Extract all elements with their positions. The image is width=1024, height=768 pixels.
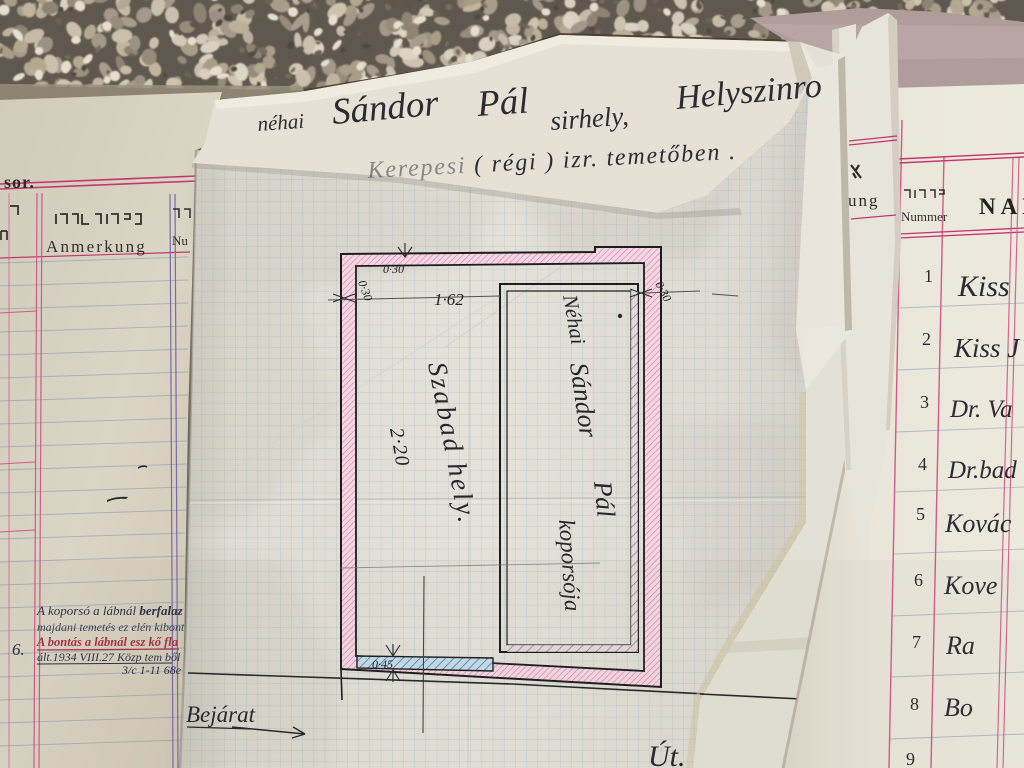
svg-text:NAM: NAM [979, 194, 1024, 219]
svg-text:Pál: Pál [588, 479, 621, 519]
svg-text:1·62: 1·62 [434, 290, 464, 309]
svg-text:Dr. Va: Dr. Va [949, 396, 1013, 423]
svg-text:néhai: néhai [257, 109, 305, 136]
svg-text:Nu: Nu [172, 233, 188, 248]
svg-text:Nummer: Nummer [901, 209, 948, 224]
svg-text:5: 5 [916, 504, 925, 524]
svg-text:Dr.bad: Dr.bad [947, 457, 1017, 484]
svg-text:Kovác: Kovác [944, 509, 1012, 538]
svg-text:ung: ung [848, 191, 880, 210]
svg-text:Kiss J: Kiss J [953, 333, 1021, 363]
svg-text:sor.: sor. [4, 172, 35, 192]
svg-text:Kiss: Kiss [957, 270, 1010, 303]
svg-text:4: 4 [918, 454, 927, 474]
svg-text:3: 3 [920, 392, 929, 412]
svg-text:sirhely,: sirhely, [549, 101, 629, 136]
svg-text:0·30: 0·30 [383, 262, 404, 276]
svg-text:Anmerkung: Anmerkung [46, 237, 147, 256]
svg-text:1: 1 [924, 266, 933, 286]
svg-text:Pál: Pál [475, 80, 530, 125]
svg-text:2: 2 [922, 329, 931, 349]
